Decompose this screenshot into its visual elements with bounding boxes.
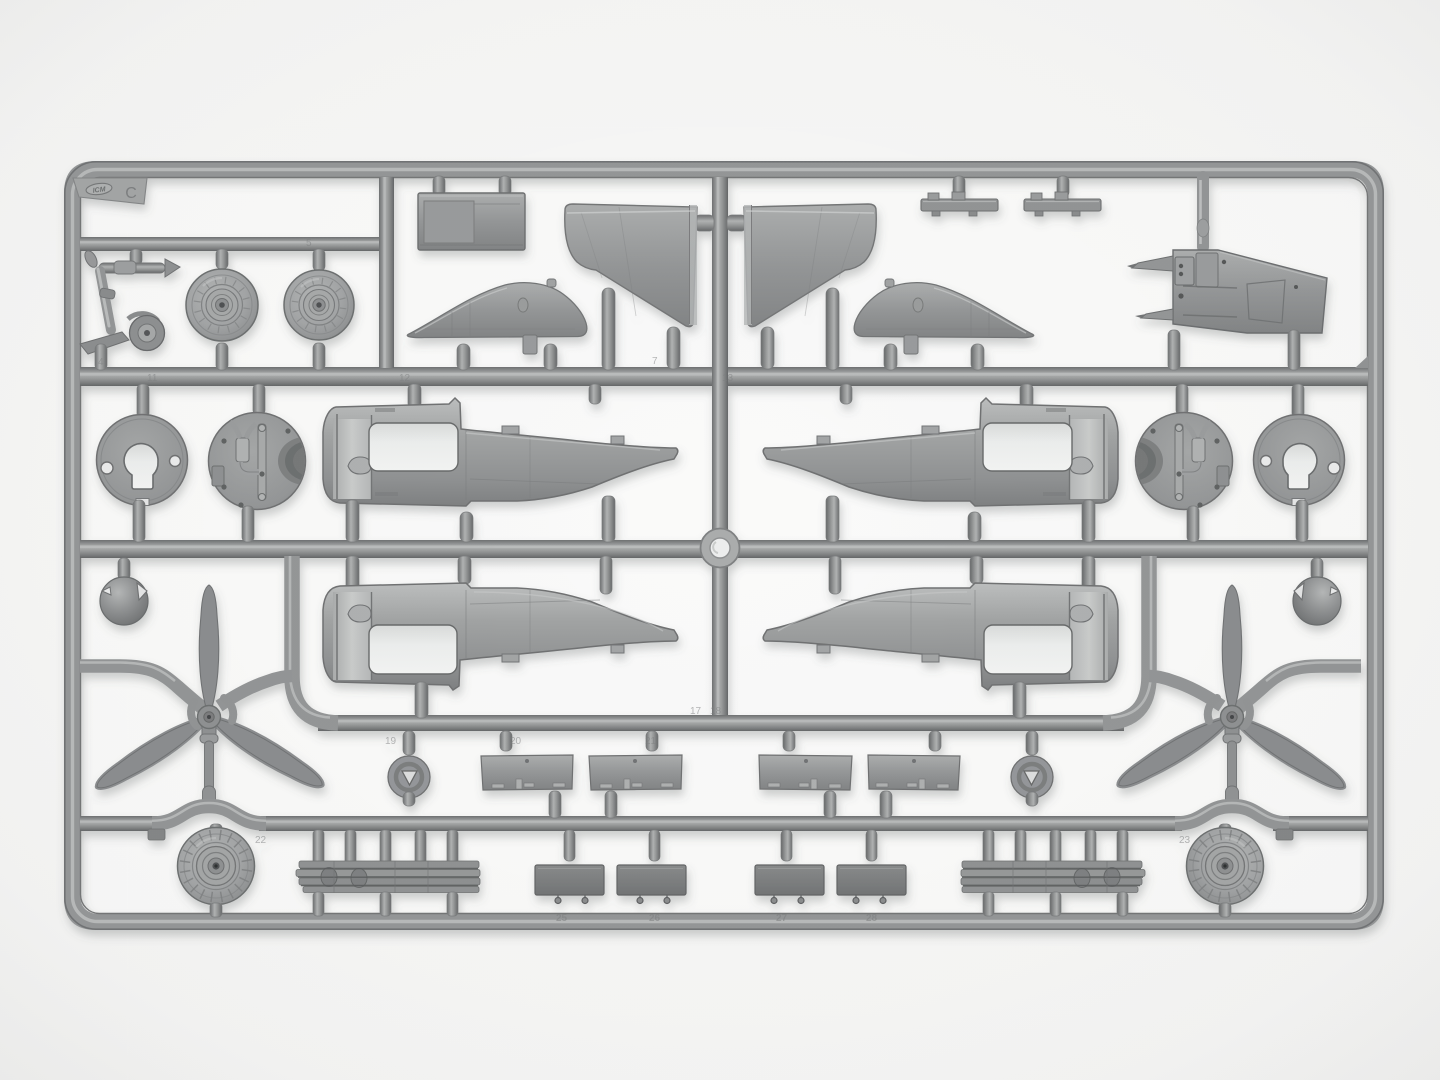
svg-text:11: 11 — [147, 373, 158, 384]
svg-text:27: 27 — [776, 913, 788, 924]
svg-text:19: 19 — [385, 736, 397, 747]
svg-text:17: 17 — [690, 706, 702, 717]
svg-text:20: 20 — [510, 736, 522, 747]
svg-text:21: 21 — [645, 736, 657, 747]
svg-text:13: 13 — [722, 373, 734, 384]
svg-text:25: 25 — [556, 913, 568, 924]
svg-text:5: 5 — [306, 238, 312, 249]
svg-text:23: 23 — [1179, 835, 1191, 846]
svg-text:18: 18 — [710, 706, 722, 717]
svg-text:28: 28 — [866, 913, 878, 924]
svg-text:22: 22 — [255, 835, 267, 846]
svg-text:26: 26 — [649, 913, 661, 924]
svg-text:7: 7 — [652, 356, 658, 367]
svg-text:12: 12 — [399, 373, 411, 384]
svg-text:C: C — [125, 185, 137, 202]
svg-text:4: 4 — [98, 357, 104, 368]
